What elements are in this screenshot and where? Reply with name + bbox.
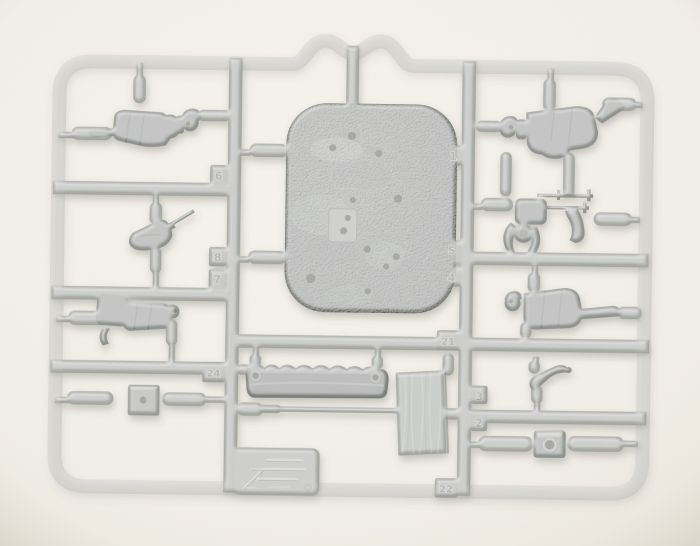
model-kit-sprue-photo: 6 8 7 24 1 5 4 21 22 3 2 xyxy=(0,0,700,546)
photo-vignette xyxy=(0,0,700,546)
photo-stage: 6 8 7 24 1 5 4 21 22 3 2 xyxy=(0,0,700,546)
